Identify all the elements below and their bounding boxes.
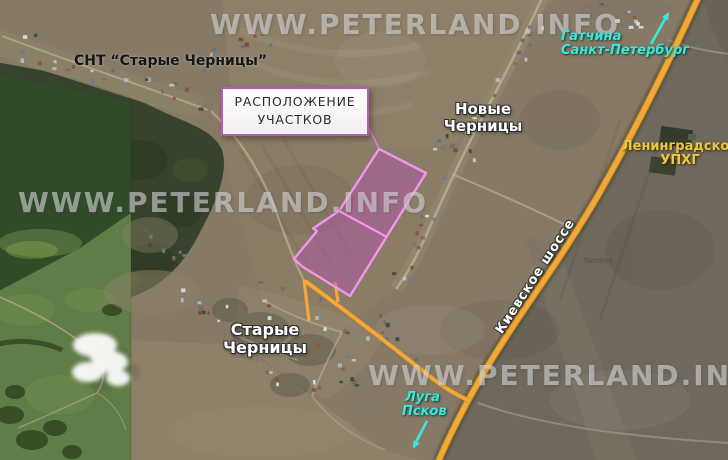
upkhg-line1: Ленинградское <box>622 140 728 154</box>
novye-line2: Черницы <box>444 118 523 135</box>
starye-chernitsy-label: Старые Черницы <box>223 321 307 356</box>
callout-line1: РАСПОЛОЖЕНИЕ <box>227 93 363 111</box>
snt-starye-chernitsy-label: СНТ “Старые Черницы” <box>74 54 267 69</box>
watermark: WWW.PETERLAND.INFO <box>210 8 620 41</box>
upkhg-label: Ленинградское УПХГ <box>622 140 728 168</box>
north-line2: Санкт-Петербург <box>561 44 689 58</box>
upkhg-line2: УПХГ <box>622 154 728 168</box>
watermark: WWW.PETERLAND.INFO <box>18 186 428 219</box>
novye-chernitsy-label: Новые Черницы <box>444 101 523 134</box>
starye-line2: Черницы <box>223 339 307 357</box>
yandex-watermark: Yandex <box>583 256 613 265</box>
south-line1: Луга <box>402 391 447 405</box>
north-line1: Гатчина <box>561 30 689 44</box>
watermark: WWW.PETERLAND.INFO <box>368 359 728 392</box>
novye-line1: Новые <box>444 101 523 118</box>
luga-direction-label: Луга Псков <box>402 391 447 419</box>
clearing <box>104 270 200 314</box>
map-canvas: WWW.PETERLAND.INFO WWW.PETERLAND.INFO WW… <box>0 0 728 460</box>
south-line2: Псков <box>402 405 447 419</box>
green-field-patch <box>6 241 58 259</box>
callout-line2: УЧАСТКОВ <box>227 111 363 129</box>
gatchina-direction-label: Гатчина Санкт-Петербург <box>561 30 689 58</box>
plots-callout: РАСПОЛОЖЕНИЕ УЧАСТКОВ <box>221 87 369 136</box>
starye-line1: Старые <box>223 321 307 339</box>
